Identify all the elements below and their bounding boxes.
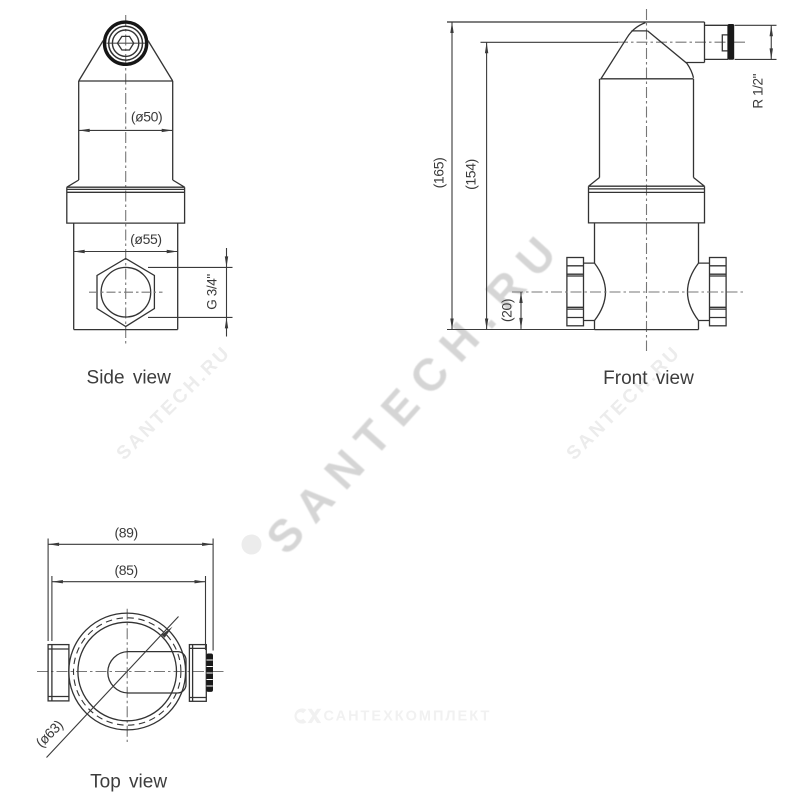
svg-text:(85): (85) [114, 562, 137, 578]
svg-text:R 1/2": R 1/2" [751, 73, 766, 108]
svg-text:Top view: Top view [90, 771, 167, 792]
svg-text:(ø50): (ø50) [131, 109, 162, 125]
svg-text:(165): (165) [431, 158, 447, 189]
svg-text:Side view: Side view [87, 368, 172, 389]
svg-text:G 3/4": G 3/4" [205, 274, 220, 310]
svg-text:САНТЕХКОМПЛЕКТ: САНТЕХКОМПЛЕКТ [324, 709, 492, 725]
svg-text:(ø55): (ø55) [130, 231, 161, 247]
svg-text:Front view: Front view [603, 368, 694, 389]
svg-text:(20): (20) [499, 299, 515, 322]
svg-text:(89): (89) [114, 525, 137, 541]
svg-text:(154): (154) [463, 159, 479, 190]
